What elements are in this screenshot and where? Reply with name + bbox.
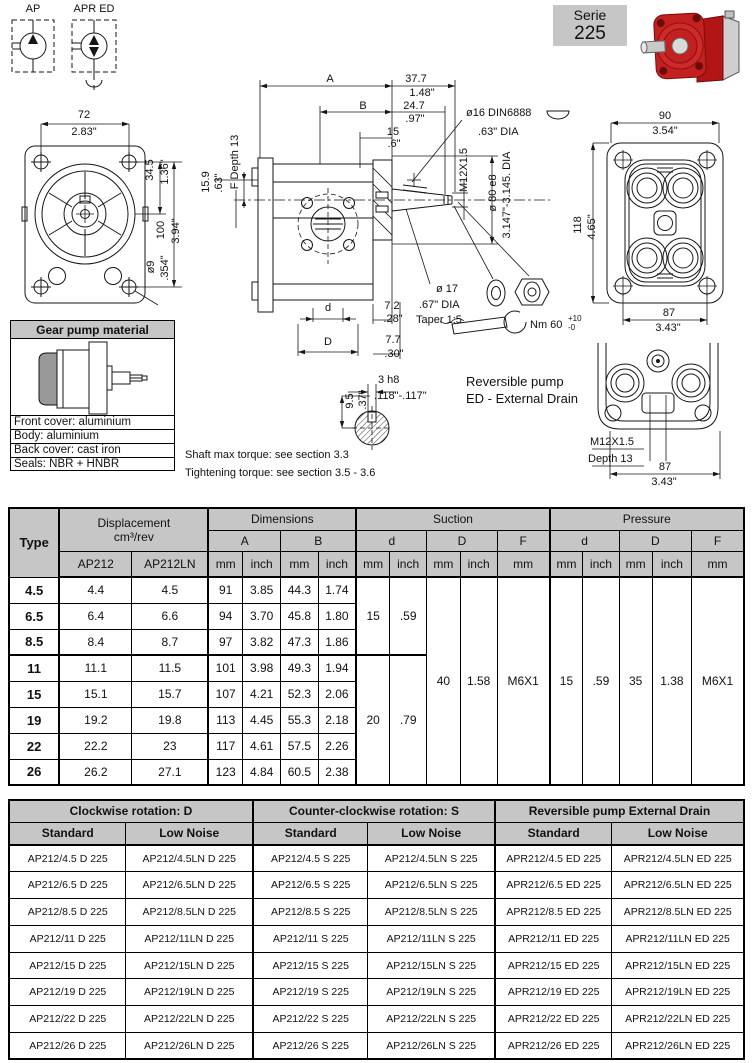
- rev-depth-label: Depth 13: [588, 453, 633, 465]
- order-cell: APR212/19LN ED 225: [612, 979, 744, 1006]
- order-cell: AP212/8.5 S 225: [253, 899, 368, 926]
- order-cell: APR212/19 ED 225: [495, 979, 612, 1006]
- dim-cell: 123: [208, 759, 242, 785]
- unit-mm: mm: [427, 551, 460, 577]
- displacement-label: Displacement: [97, 516, 170, 530]
- col-pressure: Pressure: [550, 508, 744, 530]
- dim-cell: 117: [208, 733, 242, 759]
- order-cell: AP212/11 D 225: [9, 925, 126, 952]
- dim-row: 4.54.44.5913.8544.31.7415.59401.58M6X115…: [9, 577, 744, 603]
- suction-d-inch: .59: [390, 577, 427, 655]
- datasheet-page: AP APR ED Serie 225: [0, 0, 753, 1063]
- order-cell: AP212/4.5 D 225: [9, 845, 126, 872]
- dim-cell: 3.98: [243, 655, 281, 681]
- dim-247-mm: 24.7: [396, 100, 432, 112]
- serie-number: 225: [553, 24, 627, 44]
- unit-inch: inch: [460, 551, 497, 577]
- dim-type-cell: 26: [9, 759, 59, 785]
- front-width-in: 2.83": [40, 126, 128, 138]
- dim-cell: 27.1: [132, 759, 209, 785]
- order-cell: AP212/11LN D 225: [126, 925, 253, 952]
- order-row: AP212/15 D 225AP212/15LN D 225AP212/15 S…: [9, 952, 744, 979]
- order-cell: AP212/4.5LN D 225: [126, 845, 253, 872]
- order-row: AP212/4.5 D 225AP212/4.5LN D 225AP212/4.…: [9, 845, 744, 872]
- dim-72-mm: 7.2: [377, 300, 407, 312]
- order-cell: AP212/19 S 225: [253, 979, 368, 1006]
- col-displacement: Displacement cm³/rev: [59, 508, 208, 551]
- order-cell: AP212/4.5LN S 225: [368, 845, 495, 872]
- hydraulic-symbols-icon: [8, 14, 128, 94]
- serie-box: Serie 225: [553, 5, 627, 46]
- order-row: AP212/22 D 225AP212/22LN D 225AP212/22 S…: [9, 1006, 744, 1033]
- col-dimensions: Dimensions: [208, 508, 356, 530]
- pressure-d-mm: 15: [550, 577, 583, 785]
- front-height-in: 3.94": [170, 212, 182, 250]
- sub-low-noise: Low Noise: [368, 822, 495, 845]
- keyseat-h-mm: 9.5: [344, 388, 356, 414]
- suction-D-inch: 1.58: [460, 577, 497, 785]
- dim-cell: 44.3: [281, 577, 318, 603]
- order-table-body: AP212/4.5 D 225AP212/4.5LN D 225AP212/4.…: [9, 845, 744, 1059]
- dim-cell: 4.61: [243, 733, 281, 759]
- order-cell: APR212/22 ED 225: [495, 1006, 612, 1033]
- back-width-mm: 90: [648, 110, 682, 122]
- order-row: AP212/19 D 225AP212/19LN D 225AP212/19 S…: [9, 979, 744, 1006]
- dim-type-cell: 22: [9, 733, 59, 759]
- pressure-F: M6X1: [692, 577, 744, 785]
- front-center-mm: 34.5: [144, 154, 156, 186]
- front-width-mm: 72: [40, 109, 128, 121]
- pilot-in-label: 3.147"-3.145. DIA: [501, 145, 513, 245]
- dim-cell: 19.8: [132, 707, 209, 733]
- dim-77-in: .30": [379, 348, 409, 360]
- order-cell: APR212/15LN ED 225: [612, 952, 744, 979]
- dim-cell: 4.5: [132, 577, 209, 603]
- dim-cell: 101: [208, 655, 242, 681]
- taper-dia: ø 17: [428, 283, 466, 295]
- suction-F: M6X1: [497, 577, 549, 785]
- dim-cell: 1.94: [318, 655, 356, 681]
- order-cell: APR212/26LN ED 225: [612, 1033, 744, 1060]
- dim-cell: 45.8: [281, 603, 318, 629]
- note-shaft-torque: Shaft max torque: see section 3.3: [185, 449, 349, 461]
- dim-cell: 3.85: [243, 577, 281, 603]
- unit-inch: inch: [390, 551, 427, 577]
- dim-cell: 107: [208, 681, 242, 707]
- dim-table-body: 4.54.44.5913.8544.31.7415.59401.58M6X115…: [9, 577, 744, 785]
- dim-cell: 49.3: [281, 655, 318, 681]
- order-cell: AP212/19LN D 225: [126, 979, 253, 1006]
- dim-77-mm: 7.7: [378, 334, 408, 346]
- keyseat-range-label: .118"-.117": [374, 390, 427, 402]
- order-cell: APR212/4.5LN ED 225: [612, 845, 744, 872]
- dim-72-in: .28": [378, 313, 408, 325]
- dim-cell: 2.06: [318, 681, 356, 707]
- dim-cell: 1.80: [318, 603, 356, 629]
- unit-mm: mm: [497, 551, 549, 577]
- sub-standard: Standard: [253, 822, 368, 845]
- suction-d-inch: .79: [390, 655, 427, 785]
- order-row: AP212/6.5 D 225AP212/6.5LN D 225AP212/6.…: [9, 872, 744, 899]
- order-cell: AP212/22 D 225: [9, 1006, 126, 1033]
- order-cell: AP212/15 S 225: [253, 952, 368, 979]
- thread-label: M12X1.5: [458, 142, 470, 198]
- order-cell: AP212/8.5LN S 225: [368, 899, 495, 926]
- order-row: AP212/26 D 225AP212/26LN D 225AP212/26 S…: [9, 1033, 744, 1060]
- order-cell: APR212/22LN ED 225: [612, 1006, 744, 1033]
- material-row: Front cover: aluminium: [11, 415, 174, 429]
- order-cell: APR212/4.5 ED 225: [495, 845, 612, 872]
- material-box-title: Gear pump material: [11, 321, 174, 339]
- taper-dia-in: .67" DIA: [419, 299, 460, 311]
- dim-header-row-1: Type Displacement cm³/rev Dimensions Suc…: [9, 508, 744, 530]
- pump-side-icon: [11, 339, 174, 415]
- order-cell: AP212/8.5 D 225: [9, 899, 126, 926]
- col-b: B: [281, 530, 357, 551]
- dim-cell: 113: [208, 707, 242, 733]
- order-row: AP212/11 D 225AP212/11LN D 225AP212/11 S…: [9, 925, 744, 952]
- dim-377-mm: 37.7: [396, 73, 436, 85]
- dim-type-cell: 11: [9, 655, 59, 681]
- order-cell: APR212/6.5 ED 225: [495, 872, 612, 899]
- dim-cell: 91: [208, 577, 242, 603]
- dim-cell: 4.84: [243, 759, 281, 785]
- order-cell: APR212/8.5LN ED 225: [612, 899, 744, 926]
- material-box: Gear pump material Front cover: aluminiu…: [10, 320, 175, 471]
- rev-width-in: 3.43": [643, 476, 685, 488]
- unit-inch: inch: [318, 551, 356, 577]
- dim-cell: 11.5: [132, 655, 209, 681]
- dim-cell: 26.2: [59, 759, 131, 785]
- material-rows: Front cover: aluminiumBody: aluminiumBac…: [11, 415, 174, 471]
- dim-cell: 4.21: [243, 681, 281, 707]
- order-cell: AP212/22LN D 225: [126, 1006, 253, 1033]
- serie-label: Serie: [553, 5, 627, 24]
- dim-cell: 2.26: [318, 733, 356, 759]
- unit-mm: mm: [550, 551, 583, 577]
- order-cell: AP212/6.5 D 225: [9, 872, 126, 899]
- dim-159-mm: 15.9: [200, 166, 212, 198]
- dim-cell: 23: [132, 733, 209, 759]
- dim-cell: 8.7: [132, 629, 209, 655]
- col-suction-F: F: [497, 530, 549, 551]
- f-depth-label: F Depth 13: [229, 129, 241, 195]
- pressure-D-inch: 1.38: [652, 577, 691, 785]
- dim-cell: 6.6: [132, 603, 209, 629]
- material-row: Body: aluminium: [11, 429, 174, 443]
- back-bottom-in: 3.43": [647, 322, 689, 334]
- col-suction-d: d: [356, 530, 426, 551]
- dim-cell: 4.45: [243, 707, 281, 733]
- front-height-mm: 100: [155, 216, 167, 244]
- order-cell: AP212/22 S 225: [253, 1006, 368, 1033]
- pressure-D-mm: 35: [619, 577, 652, 785]
- reversible-title-2: ED - External Drain: [466, 391, 578, 406]
- col-suction: Suction: [356, 508, 549, 530]
- order-cell: AP212/19 D 225: [9, 979, 126, 1006]
- dim-B: B: [352, 100, 374, 112]
- order-cell: AP212/26LN D 225: [126, 1033, 253, 1060]
- dim-cell: 15.7: [132, 681, 209, 707]
- col-suction-D: D: [427, 530, 497, 551]
- key-dia-label: .63" DIA: [478, 126, 519, 138]
- back-height-mm: 118: [572, 211, 584, 239]
- pressure-d-inch: .59: [583, 577, 619, 785]
- dim-type-cell: 19: [9, 707, 59, 733]
- col-a: A: [208, 530, 280, 551]
- order-cell: AP212/11 S 225: [253, 925, 368, 952]
- unit-inch: inch: [243, 551, 281, 577]
- col-pressure-F: F: [692, 530, 744, 551]
- order-row: AP212/8.5 D 225AP212/8.5LN D 225AP212/8.…: [9, 899, 744, 926]
- order-cell: AP212/6.5LN S 225: [368, 872, 495, 899]
- order-cell: APR212/15 ED 225: [495, 952, 612, 979]
- material-row: Back cover: cast iron: [11, 443, 174, 457]
- order-header-sub: Standard Low Noise Standard Low Noise St…: [9, 822, 744, 845]
- order-cell: AP212/4.5 S 225: [253, 845, 368, 872]
- suction-D-mm: 40: [427, 577, 460, 785]
- key-label: ø16 DIN6888: [466, 107, 531, 119]
- dim-15-in: .6": [382, 138, 406, 150]
- displacement-unit: cm³/rev: [114, 530, 154, 544]
- keyseat-top-label: 3 h8: [378, 374, 399, 386]
- group-reversible: Reversible pump External Drain: [495, 800, 744, 822]
- order-cell: AP212/26 D 225: [9, 1033, 126, 1060]
- dim-cell: 52.3: [281, 681, 318, 707]
- dim-cell: 57.5: [281, 733, 318, 759]
- dim-247-in: .97": [399, 113, 431, 125]
- material-box-drawing: [11, 339, 174, 415]
- sub-low-noise: Low Noise: [612, 822, 744, 845]
- col-type: Type: [9, 508, 59, 577]
- dim-cell: 11.1: [59, 655, 131, 681]
- order-cell: AP212/6.5 S 225: [253, 872, 368, 899]
- dim-cell: 15.1: [59, 681, 131, 707]
- reversible-title-1: Reversible pump: [466, 374, 564, 389]
- dim-cell: 22.2: [59, 733, 131, 759]
- group-clockwise: Clockwise rotation: D: [9, 800, 253, 822]
- ordering-table: Clockwise rotation: D Counter-clockwise …: [8, 799, 745, 1060]
- sub-standard: Standard: [495, 822, 612, 845]
- order-cell: APR212/6.5LN ED 225: [612, 872, 744, 899]
- order-cell: AP212/15LN S 225: [368, 952, 495, 979]
- sub-low-noise: Low Noise: [126, 822, 253, 845]
- dim-cell: 6.4: [59, 603, 131, 629]
- front-hole-in: .354": [159, 248, 171, 288]
- dim-159-in: .63": [213, 168, 225, 198]
- order-cell: APR212/26 ED 225: [495, 1033, 612, 1060]
- dim-d-big: D: [314, 336, 342, 348]
- group-counter-clockwise: Counter-clockwise rotation: S: [253, 800, 495, 822]
- col-ap212ln: AP212LN: [132, 551, 209, 577]
- order-cell: APR212/11LN ED 225: [612, 925, 744, 952]
- dim-type-cell: 4.5: [9, 577, 59, 603]
- order-cell: AP212/19LN S 225: [368, 979, 495, 1006]
- order-cell: AP212/11LN S 225: [368, 925, 495, 952]
- keyseat-h-in: .37": [357, 385, 369, 415]
- order-cell: AP212/15 D 225: [9, 952, 126, 979]
- order-cell: AP212/26LN S 225: [368, 1033, 495, 1060]
- dim-A: A: [318, 73, 342, 85]
- dim-d-small: d: [316, 302, 340, 314]
- front-hole-mm: ø9: [145, 255, 157, 279]
- rev-thread-label: M12X1.5: [590, 436, 634, 448]
- dim-cell: 55.3: [281, 707, 318, 733]
- dim-cell: 2.18: [318, 707, 356, 733]
- dim-cell: 19.2: [59, 707, 131, 733]
- order-cell: AP212/15LN D 225: [126, 952, 253, 979]
- back-height-in: 4.65": [586, 207, 598, 247]
- torque-label: Nm 60: [530, 319, 562, 331]
- back-bottom-mm: 87: [652, 307, 686, 319]
- dim-cell: 3.82: [243, 629, 281, 655]
- col-pressure-D: D: [619, 530, 691, 551]
- dim-cell: 47.3: [281, 629, 318, 655]
- taper-label: Taper 1:5: [416, 314, 462, 326]
- order-cell: AP212/26 S 225: [253, 1033, 368, 1060]
- front-center-in: 1.36": [159, 155, 171, 189]
- unit-mm: mm: [208, 551, 242, 577]
- unit-mm: mm: [692, 551, 744, 577]
- col-pressure-d: d: [550, 530, 619, 551]
- pilot-label: ø 80 e8: [487, 167, 499, 219]
- material-row: Seals: NBR + HNBR: [11, 457, 174, 471]
- dim-cell: 97: [208, 629, 242, 655]
- dim-cell: 4.4: [59, 577, 131, 603]
- dim-type-cell: 6.5: [9, 603, 59, 629]
- order-header-groups: Clockwise rotation: D Counter-clockwise …: [9, 800, 744, 822]
- suction-d-mm: 15: [356, 577, 389, 655]
- unit-mm: mm: [619, 551, 652, 577]
- unit-inch: inch: [583, 551, 619, 577]
- dim-header-row-3: AP212 AP212LN mm inch mm inch mm inch mm…: [9, 551, 744, 577]
- suction-d-mm: 20: [356, 655, 389, 785]
- col-ap212: AP212: [59, 551, 131, 577]
- dim-type-cell: 15: [9, 681, 59, 707]
- dim-cell: 1.74: [318, 577, 356, 603]
- order-cell: AP212/6.5LN D 225: [126, 872, 253, 899]
- dim-cell: 8.4: [59, 629, 131, 655]
- pump-photo: [645, 2, 751, 96]
- note-tightening-torque: Tightening torque: see section 3.5 - 3.6: [185, 467, 375, 479]
- dim-cell: 1.86: [318, 629, 356, 655]
- unit-mm: mm: [356, 551, 389, 577]
- dim-cell: 2.38: [318, 759, 356, 785]
- order-cell: AP212/8.5LN D 225: [126, 899, 253, 926]
- unit-inch: inch: [652, 551, 691, 577]
- dim-cell: 60.5: [281, 759, 318, 785]
- order-cell: APR212/8.5 ED 225: [495, 899, 612, 926]
- dim-type-cell: 8.5: [9, 629, 59, 655]
- order-cell: AP212/22LN S 225: [368, 1006, 495, 1033]
- order-cell: APR212/11 ED 225: [495, 925, 612, 952]
- dimensions-table: Type Displacement cm³/rev Dimensions Suc…: [8, 507, 745, 786]
- dim-15-mm: 15: [380, 126, 406, 138]
- sub-standard: Standard: [9, 822, 126, 845]
- back-width-in: 3.54": [644, 125, 686, 137]
- dim-cell: 94: [208, 603, 242, 629]
- unit-mm: mm: [281, 551, 318, 577]
- dim-377-in: 1.48": [402, 87, 442, 99]
- dim-cell: 3.70: [243, 603, 281, 629]
- rev-width-mm: 87: [648, 461, 682, 473]
